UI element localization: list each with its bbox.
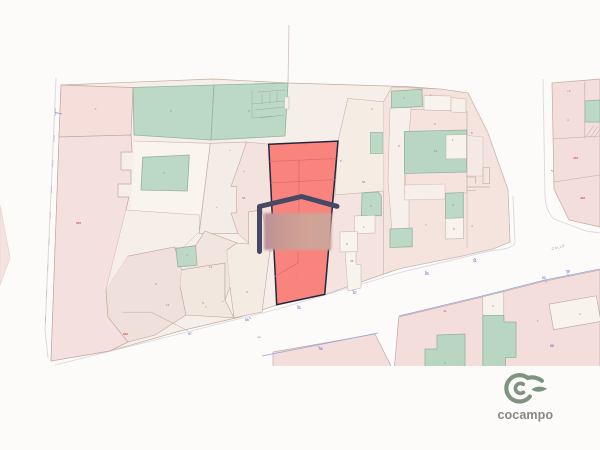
svg-text:+3: +3 [567, 89, 571, 93]
svg-text:488: 488 [580, 196, 585, 200]
svg-text:88: 88 [362, 180, 366, 184]
svg-text:488: 488 [573, 156, 578, 160]
svg-text:+: + [229, 148, 231, 152]
svg-text:97: 97 [188, 332, 192, 336]
svg-text:888: 888 [123, 332, 128, 336]
svg-text:50: 50 [542, 276, 546, 280]
svg-text:58: 58 [566, 270, 570, 274]
svg-text:+: + [222, 299, 224, 303]
svg-text:mc: mc [257, 335, 261, 339]
svg-text:88: 88 [242, 196, 246, 200]
svg-text:65: 65 [425, 272, 429, 276]
svg-text:65: 65 [245, 318, 249, 322]
svg-text:12: 12 [166, 303, 170, 307]
svg-text:+: + [243, 169, 245, 173]
svg-text:48: 48 [350, 259, 354, 263]
svg-text:+: + [216, 205, 218, 209]
svg-text:888: 888 [76, 221, 81, 225]
svg-text:cocampo: cocampo [498, 408, 554, 422]
svg-text:49: 49 [443, 309, 447, 313]
svg-text:51: 51 [473, 259, 477, 263]
svg-text:88: 88 [550, 344, 554, 348]
svg-text:12: 12 [209, 265, 213, 269]
svg-text:16: 16 [434, 149, 438, 153]
svg-text:45: 45 [297, 306, 301, 310]
